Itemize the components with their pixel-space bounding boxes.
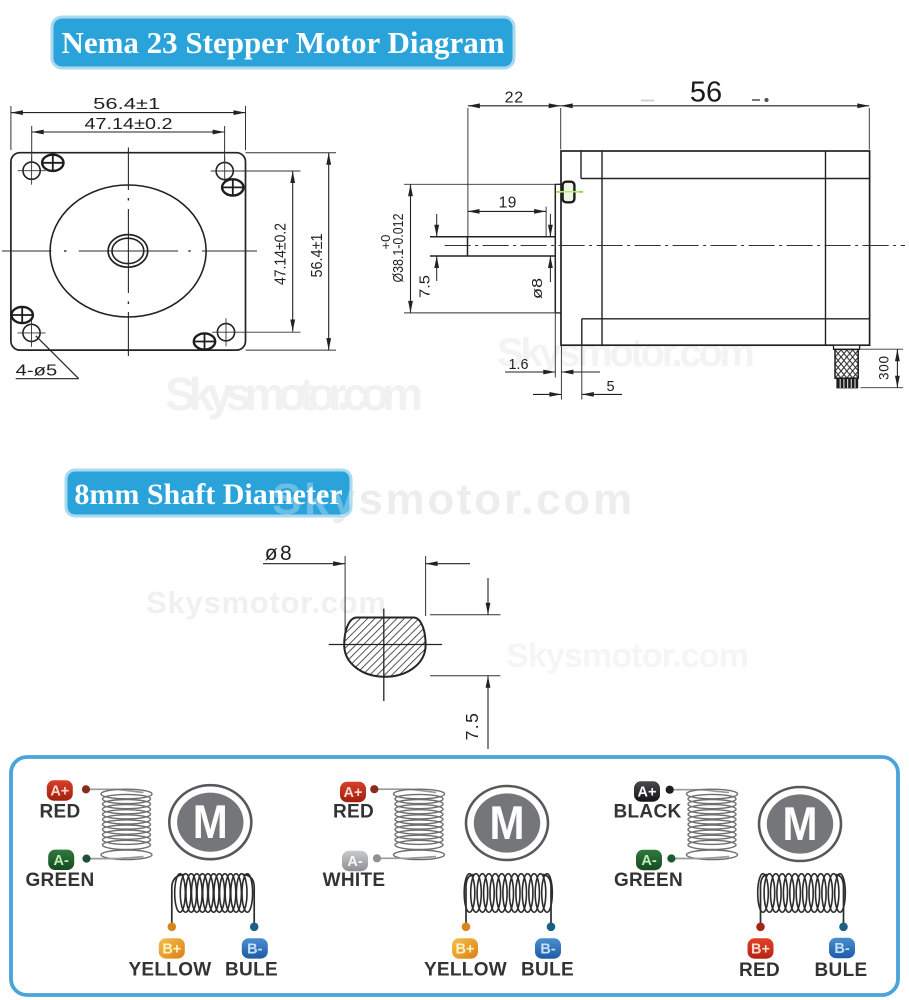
svg-text:GREEN: GREEN [614,870,683,891]
svg-text:19: 19 [499,195,517,212]
svg-text:Skysmotor.com: Skysmotor.com [497,331,755,375]
svg-text:ø8: ø8 [265,542,295,565]
svg-text:Nema 23 Stepper Motor Diagram: Nema 23 Stepper Motor Diagram [61,25,504,60]
svg-text:BULE: BULE [521,960,574,981]
svg-text:GREEN: GREEN [25,870,94,891]
svg-text:22: 22 [505,90,524,107]
svg-text:4-ø5: 4-ø5 [16,363,58,380]
svg-text:M: M [783,797,818,850]
svg-text:BULE: BULE [815,960,868,981]
svg-text:WHITE: WHITE [323,870,386,891]
svg-text:Skysmotor.com: Skysmotor.com [506,637,749,675]
svg-text:47.14±0.2: 47.14±0.2 [273,223,290,285]
svg-text:B-: B- [540,942,555,958]
svg-text:5: 5 [606,379,614,395]
svg-text:RED: RED [333,802,374,823]
svg-text:ø8: ø8 [529,278,546,299]
svg-text:A+: A+ [50,784,69,800]
svg-text:56.4±1: 56.4±1 [93,96,160,113]
svg-text:56.4±1: 56.4±1 [309,234,326,278]
svg-text:B+: B+ [456,942,475,958]
svg-text:YELLOW: YELLOW [128,960,211,981]
svg-text:B+: B+ [162,942,181,958]
svg-text:BLACK: BLACK [614,802,682,823]
svg-text:A+: A+ [638,785,657,801]
svg-text:B-: B- [247,942,262,958]
svg-text:47.14±0.2: 47.14±0.2 [85,116,173,133]
svg-text:A+: A+ [344,785,363,801]
svg-text:RED: RED [39,802,80,823]
svg-text:B+: B+ [751,942,770,958]
svg-text:YELLOW: YELLOW [424,960,507,981]
svg-text:A-: A- [641,853,656,869]
svg-text:7.5: 7.5 [417,275,434,298]
svg-text:Skysmotor.com: Skysmotor.com [165,368,423,420]
svg-text:BULE: BULE [225,960,278,981]
svg-text:M: M [490,796,525,849]
svg-text:7.5: 7.5 [462,712,482,741]
svg-text:A-: A- [347,854,362,870]
svg-text:Ø38.1-0.012: Ø38.1-0.012 [391,214,407,283]
svg-text:300: 300 [877,356,892,380]
svg-text:56: 56 [690,77,722,109]
svg-text:M: M [193,795,228,848]
svg-text:+0: +0 [378,235,393,250]
svg-text:B-: B- [834,941,849,957]
svg-text:1.6: 1.6 [509,357,529,373]
svg-text:RED: RED [739,960,780,981]
svg-text:Skysmotor.com: Skysmotor.com [146,585,386,620]
svg-text:8mm Shaft Diameter: 8mm Shaft Diameter [74,478,342,511]
svg-text:A-: A- [54,853,69,869]
